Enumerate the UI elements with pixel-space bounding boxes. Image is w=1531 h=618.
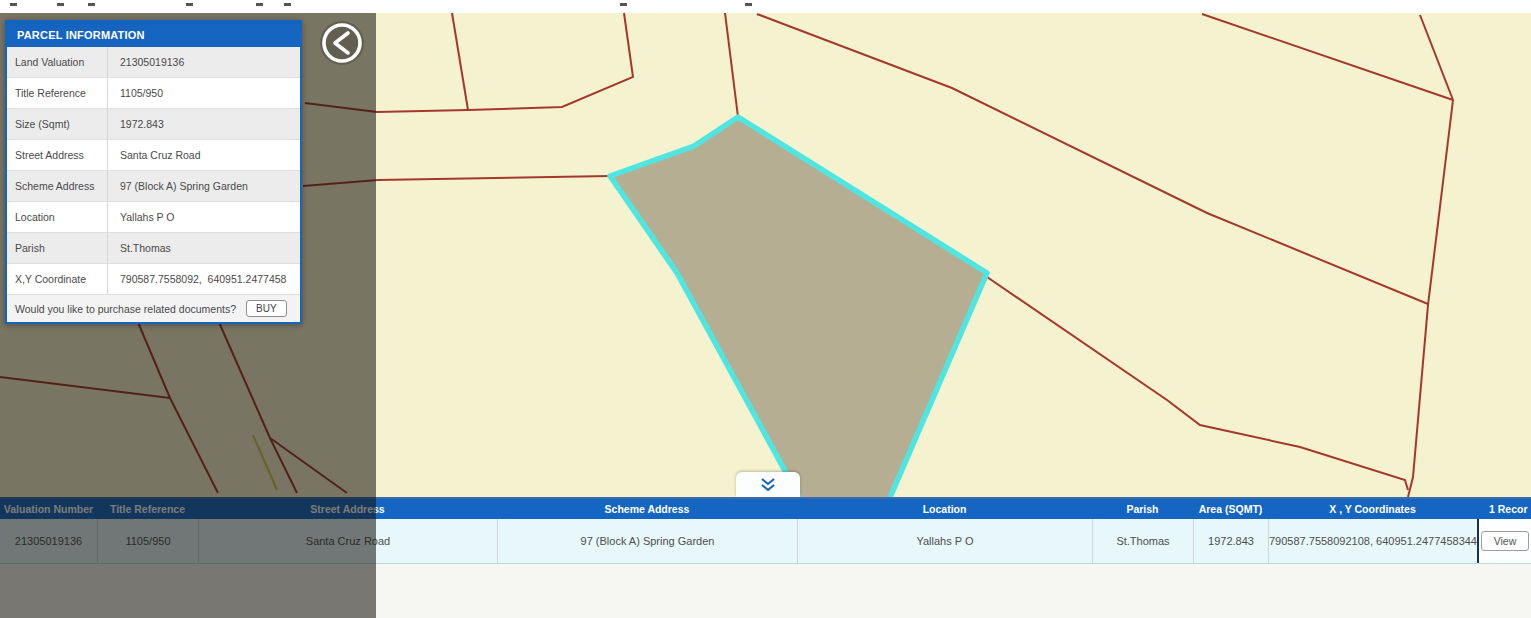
parcel-info-rows: Land Valuation21305019136Title Reference… xyxy=(7,47,300,295)
header-cell: Area (SQMT) xyxy=(1193,499,1268,519)
view-cell: View xyxy=(1477,519,1531,563)
clipped-text-fragment xyxy=(57,3,64,6)
row-cell: 1972.843 xyxy=(1193,519,1268,563)
double-chevron-down-icon xyxy=(760,478,776,492)
row-cell: 1105/950 xyxy=(97,519,198,563)
parcel-information-panel: PARCEL INFORMATION Land Valuation2130501… xyxy=(5,20,302,324)
field-label: Size (Sqmt) xyxy=(7,109,108,139)
field-value: St.Thomas xyxy=(108,233,300,263)
clipped-text-fragment xyxy=(620,3,627,6)
header-cell: X , Y Coordinates xyxy=(1268,499,1477,519)
field-value: Yallahs P O xyxy=(108,202,300,232)
clipped-text-fragment xyxy=(186,3,193,6)
header-cell: Location xyxy=(797,499,1092,519)
field-label: Title Reference xyxy=(7,78,108,108)
header-cell: Street Address xyxy=(198,499,497,519)
field-value: 97 (Block A) Spring Garden xyxy=(108,171,300,201)
parcel-info-row: Land Valuation21305019136 xyxy=(7,47,300,78)
view-button[interactable]: View xyxy=(1481,531,1530,551)
map-top-strip xyxy=(0,0,1531,13)
field-label: Parish xyxy=(7,233,108,263)
table-row[interactable]: 213050191361105/950Santa Cruz Road97 (Bl… xyxy=(0,519,1531,564)
header-cell: Parish xyxy=(1092,499,1193,519)
parcel-info-row: Street AddressSanta Cruz Road xyxy=(7,140,300,171)
header-cell: Title Reference xyxy=(97,499,198,519)
clipped-text-fragment xyxy=(284,3,291,6)
row-cell: Santa Cruz Road xyxy=(198,519,497,563)
parcel-viewer-app: Valuation NumberTitle ReferenceStreet Ad… xyxy=(0,0,1531,618)
results-table: Valuation NumberTitle ReferenceStreet Ad… xyxy=(0,497,1531,564)
clipped-text-fragment xyxy=(256,3,263,6)
field-value: 1972.843 xyxy=(108,109,300,139)
field-label: Land Valuation xyxy=(7,47,108,77)
parcel-info-row: LocationYallahs P O xyxy=(7,202,300,233)
row-cell: Yallahs P O xyxy=(797,519,1092,563)
record-count-label: 1 Recor xyxy=(1477,499,1531,519)
parcel-info-row: X,Y Coordinate790587.7558092, 640951.247… xyxy=(7,264,300,295)
clipped-text-fragment xyxy=(745,3,752,6)
row-cell: 97 (Block A) Spring Garden xyxy=(497,519,797,563)
panel-footer: Would you like to purchase related docum… xyxy=(7,295,300,322)
field-label: Scheme Address xyxy=(7,171,108,201)
collapse-table-button[interactable] xyxy=(736,472,800,497)
clipped-text-fragment xyxy=(88,3,95,6)
row-cell: 790587.7558092108, 640951.2477458344 xyxy=(1268,519,1477,563)
collapse-panel-button[interactable] xyxy=(318,19,366,67)
row-cell: 21305019136 xyxy=(0,519,97,563)
field-value: Santa Cruz Road xyxy=(108,140,300,170)
parcel-info-row: ParishSt.Thomas xyxy=(7,233,300,264)
back-button-halo xyxy=(320,21,364,65)
row-cell: St.Thomas xyxy=(1092,519,1193,563)
panel-title: PARCEL INFORMATION xyxy=(7,22,300,47)
field-value: 790587.7558092, 640951.2477458 xyxy=(108,264,300,294)
buy-button[interactable]: BUY xyxy=(246,300,287,317)
purchase-prompt-text: Would you like to purchase related docum… xyxy=(15,303,236,315)
results-table-header: Valuation NumberTitle ReferenceStreet Ad… xyxy=(0,497,1531,519)
clipped-text-fragment xyxy=(10,3,17,6)
parcel-info-row: Size (Sqmt)1972.843 xyxy=(7,109,300,140)
header-cell: Valuation Number xyxy=(0,499,97,519)
header-cell: Scheme Address xyxy=(497,499,797,519)
field-label: Street Address xyxy=(7,140,108,170)
parcel-info-row: Title Reference1105/950 xyxy=(7,78,300,109)
field-label: X,Y Coordinate xyxy=(7,264,108,294)
field-value: 21305019136 xyxy=(108,47,300,77)
field-value: 1105/950 xyxy=(108,78,300,108)
field-label: Location xyxy=(7,202,108,232)
parcel-info-row: Scheme Address97 (Block A) Spring Garden xyxy=(7,171,300,202)
